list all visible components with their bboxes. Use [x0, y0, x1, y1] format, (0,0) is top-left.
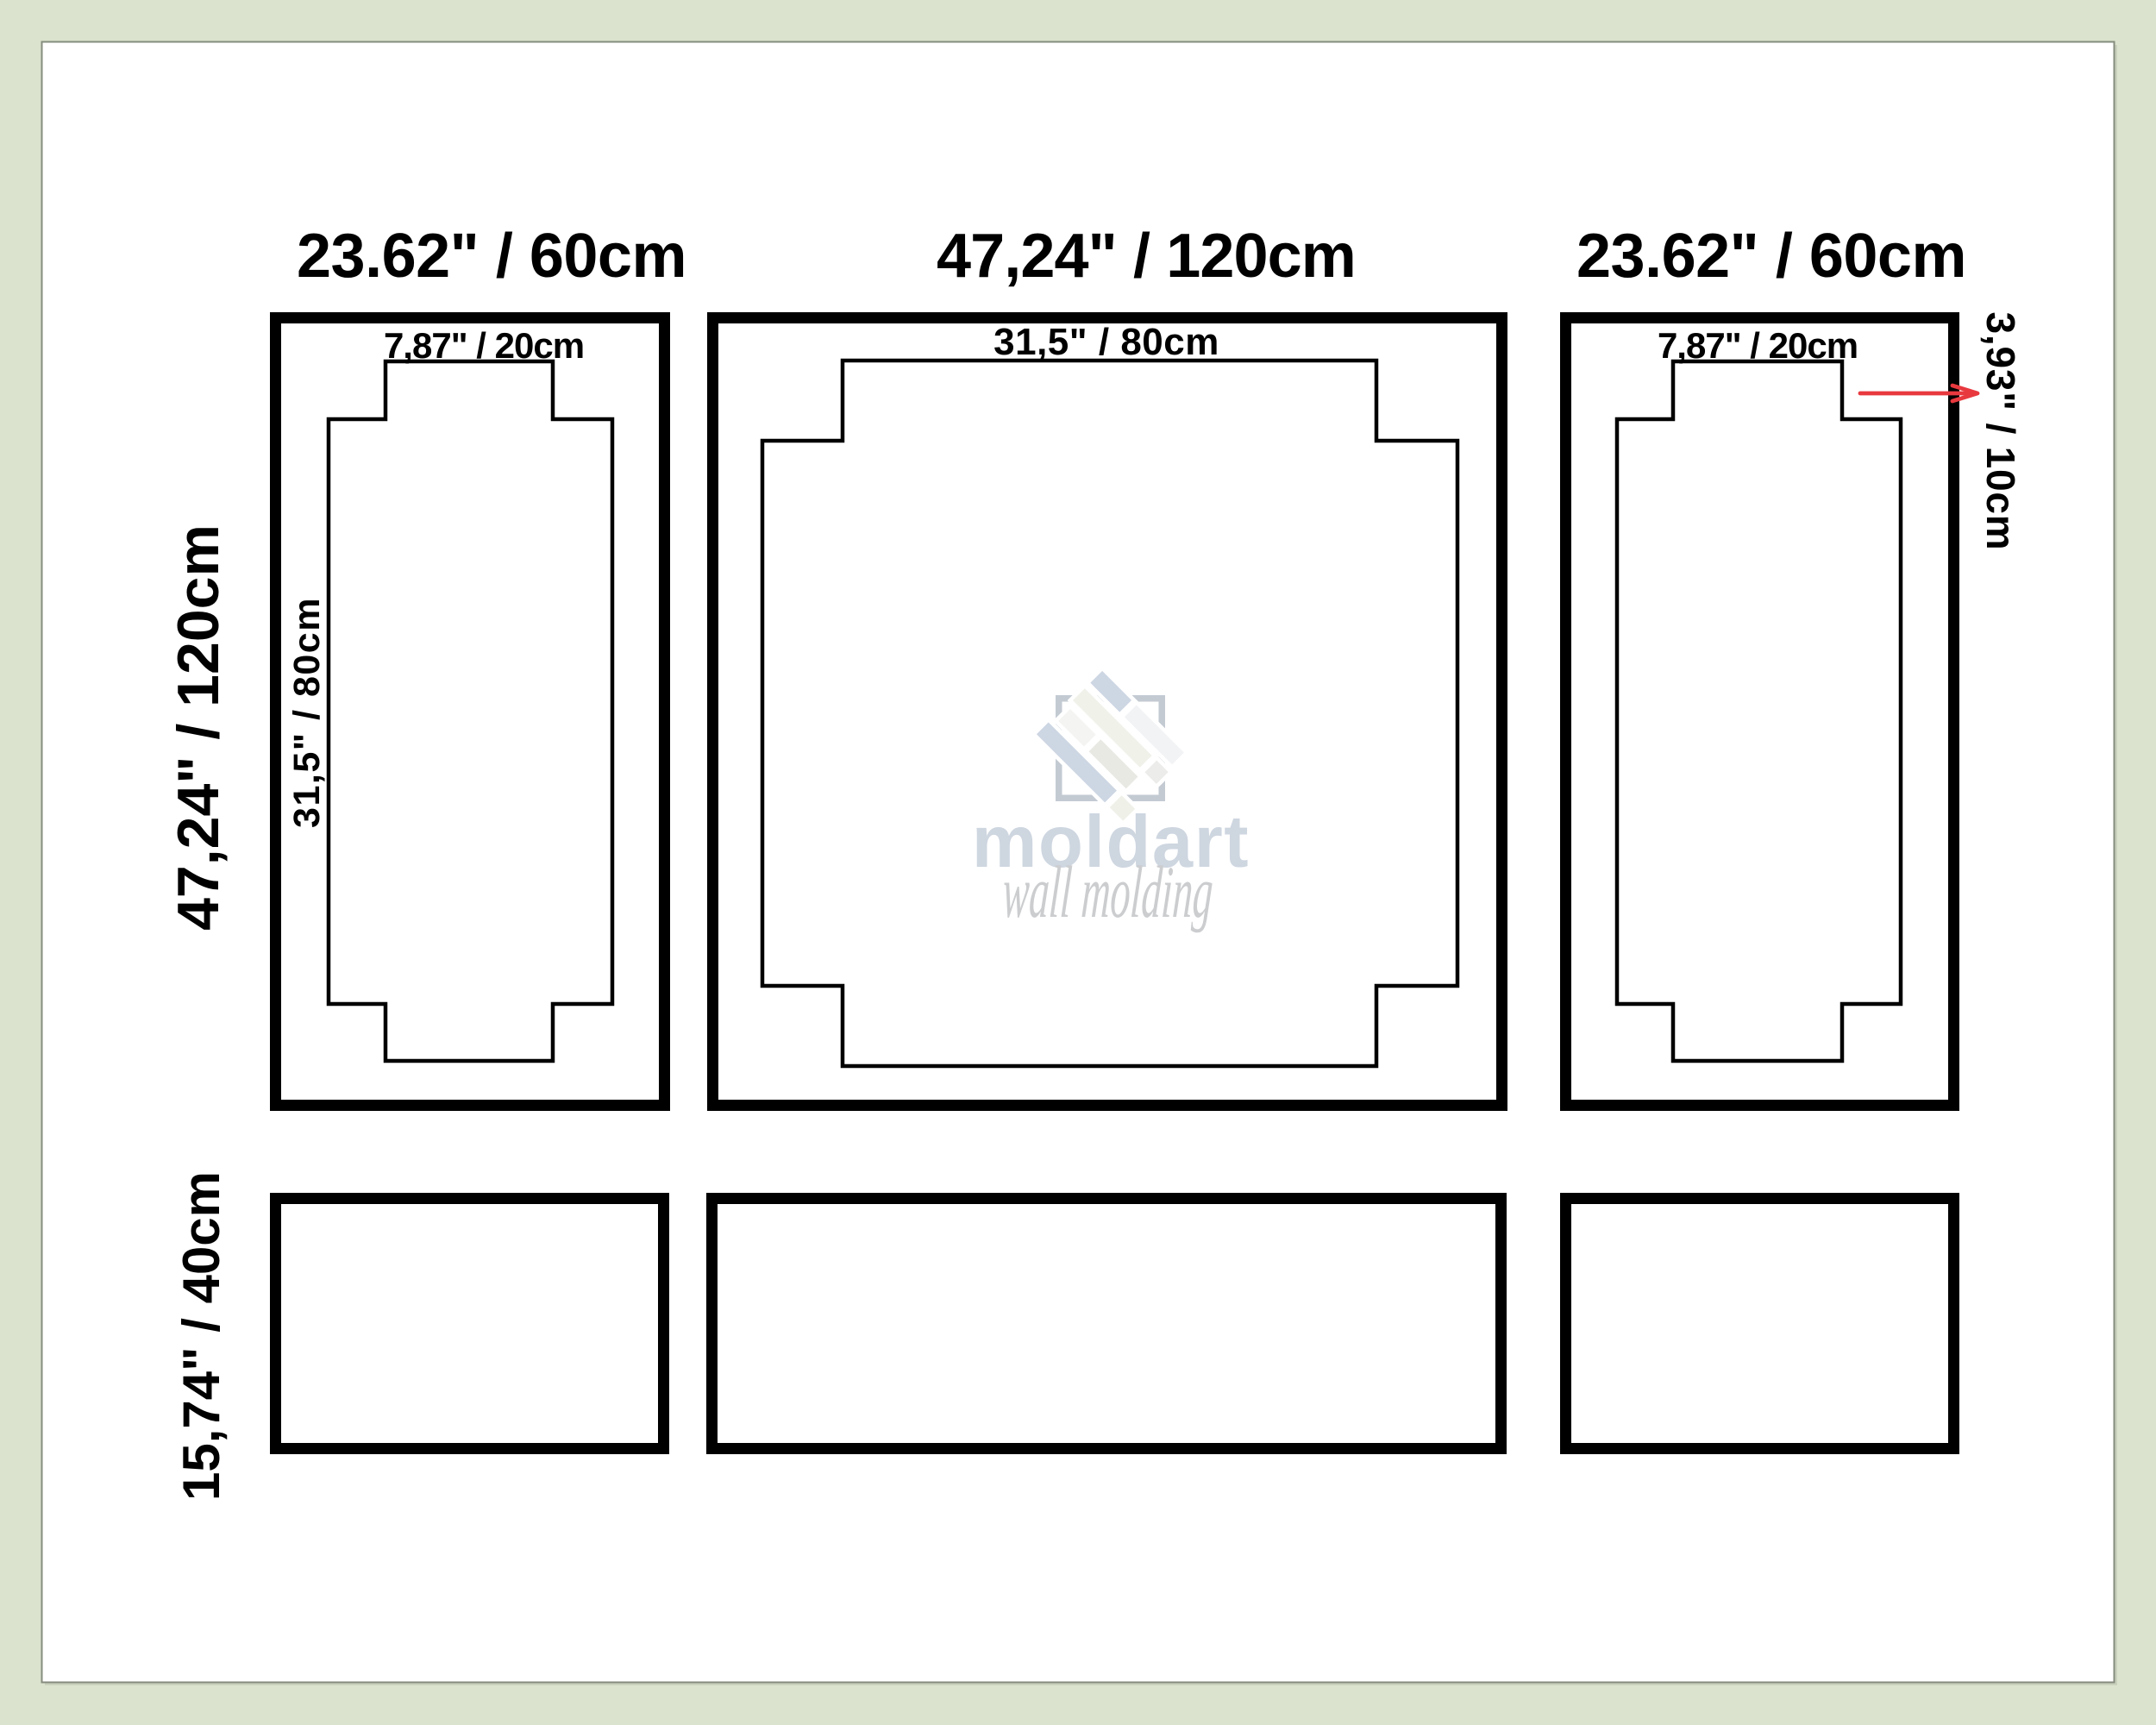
svg-text:3,93" / 10cm: 3,93" / 10cm [1978, 312, 2023, 551]
svg-text:23.62" / 60cm: 23.62" / 60cm [297, 222, 686, 291]
svg-text:47,24" / 120cm: 47,24" / 120cm [166, 524, 231, 931]
svg-text:31,5" / 80cm: 31,5" / 80cm [993, 321, 1219, 363]
svg-text:23.62" / 60cm: 23.62" / 60cm [1576, 222, 1966, 291]
svg-text:15,74" / 40cm: 15,74" / 40cm [172, 1171, 230, 1501]
svg-text:47,24" / 120cm: 47,24" / 120cm [937, 222, 1356, 291]
svg-text:7,87" / 20cm: 7,87" / 20cm [1658, 325, 1858, 366]
svg-text:31,5" / 80cm: 31,5" / 80cm [286, 597, 328, 828]
svg-text:wall molding: wall molding [1000, 850, 1215, 933]
svg-text:7,87" / 20cm: 7,87" / 20cm [384, 325, 584, 366]
